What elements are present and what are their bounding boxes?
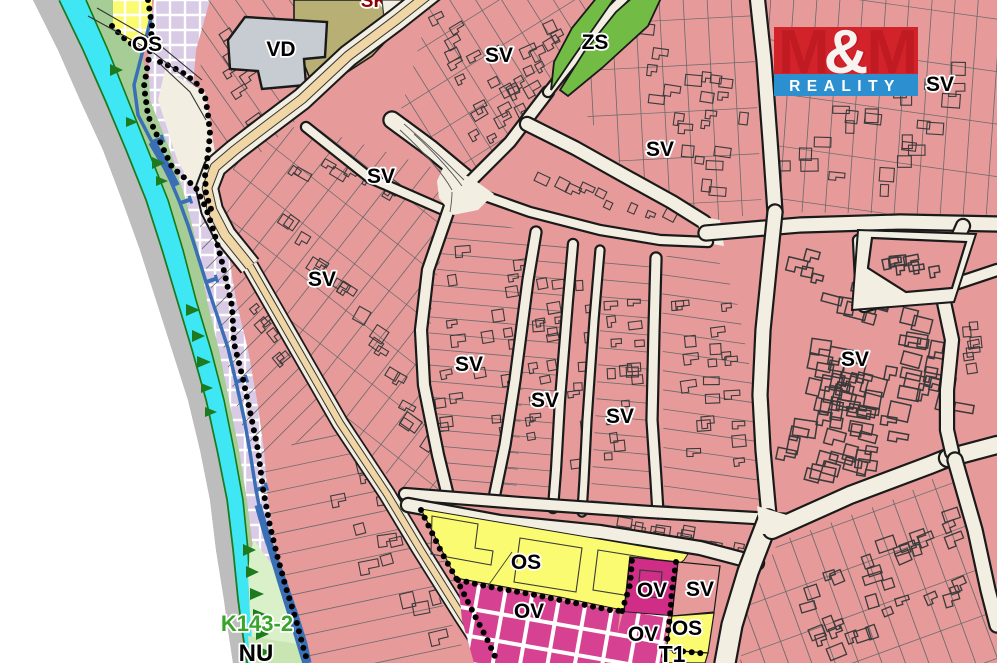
svg-text:OV: OV [637, 579, 667, 602]
svg-text:SV: SV [531, 389, 559, 412]
svg-text:SV: SV [308, 268, 336, 291]
svg-text:OS: OS [672, 617, 702, 640]
svg-text:REALITY: REALITY [789, 78, 901, 95]
svg-text:SV: SV [367, 165, 395, 188]
svg-text:SV: SV [485, 44, 513, 67]
svg-text:OS: OS [132, 33, 162, 56]
svg-text:SV: SV [926, 73, 954, 96]
svg-text:VD: VD [266, 38, 295, 61]
svg-text:OV: OV [628, 623, 658, 646]
svg-text:SV: SV [606, 405, 634, 428]
svg-text:SV: SV [455, 353, 483, 376]
svg-text:SV: SV [686, 578, 714, 601]
svg-text:&: & [824, 18, 869, 87]
svg-text:T1: T1 [659, 641, 686, 663]
svg-text:ZS: ZS [582, 31, 609, 54]
svg-text:NU: NU [239, 640, 274, 663]
svg-text:SV: SV [646, 138, 674, 161]
svg-text:SV: SV [841, 348, 869, 371]
svg-text:K143-2: K143-2 [221, 611, 293, 636]
svg-text:OV: OV [514, 600, 544, 623]
svg-text:OS: OS [511, 551, 541, 574]
